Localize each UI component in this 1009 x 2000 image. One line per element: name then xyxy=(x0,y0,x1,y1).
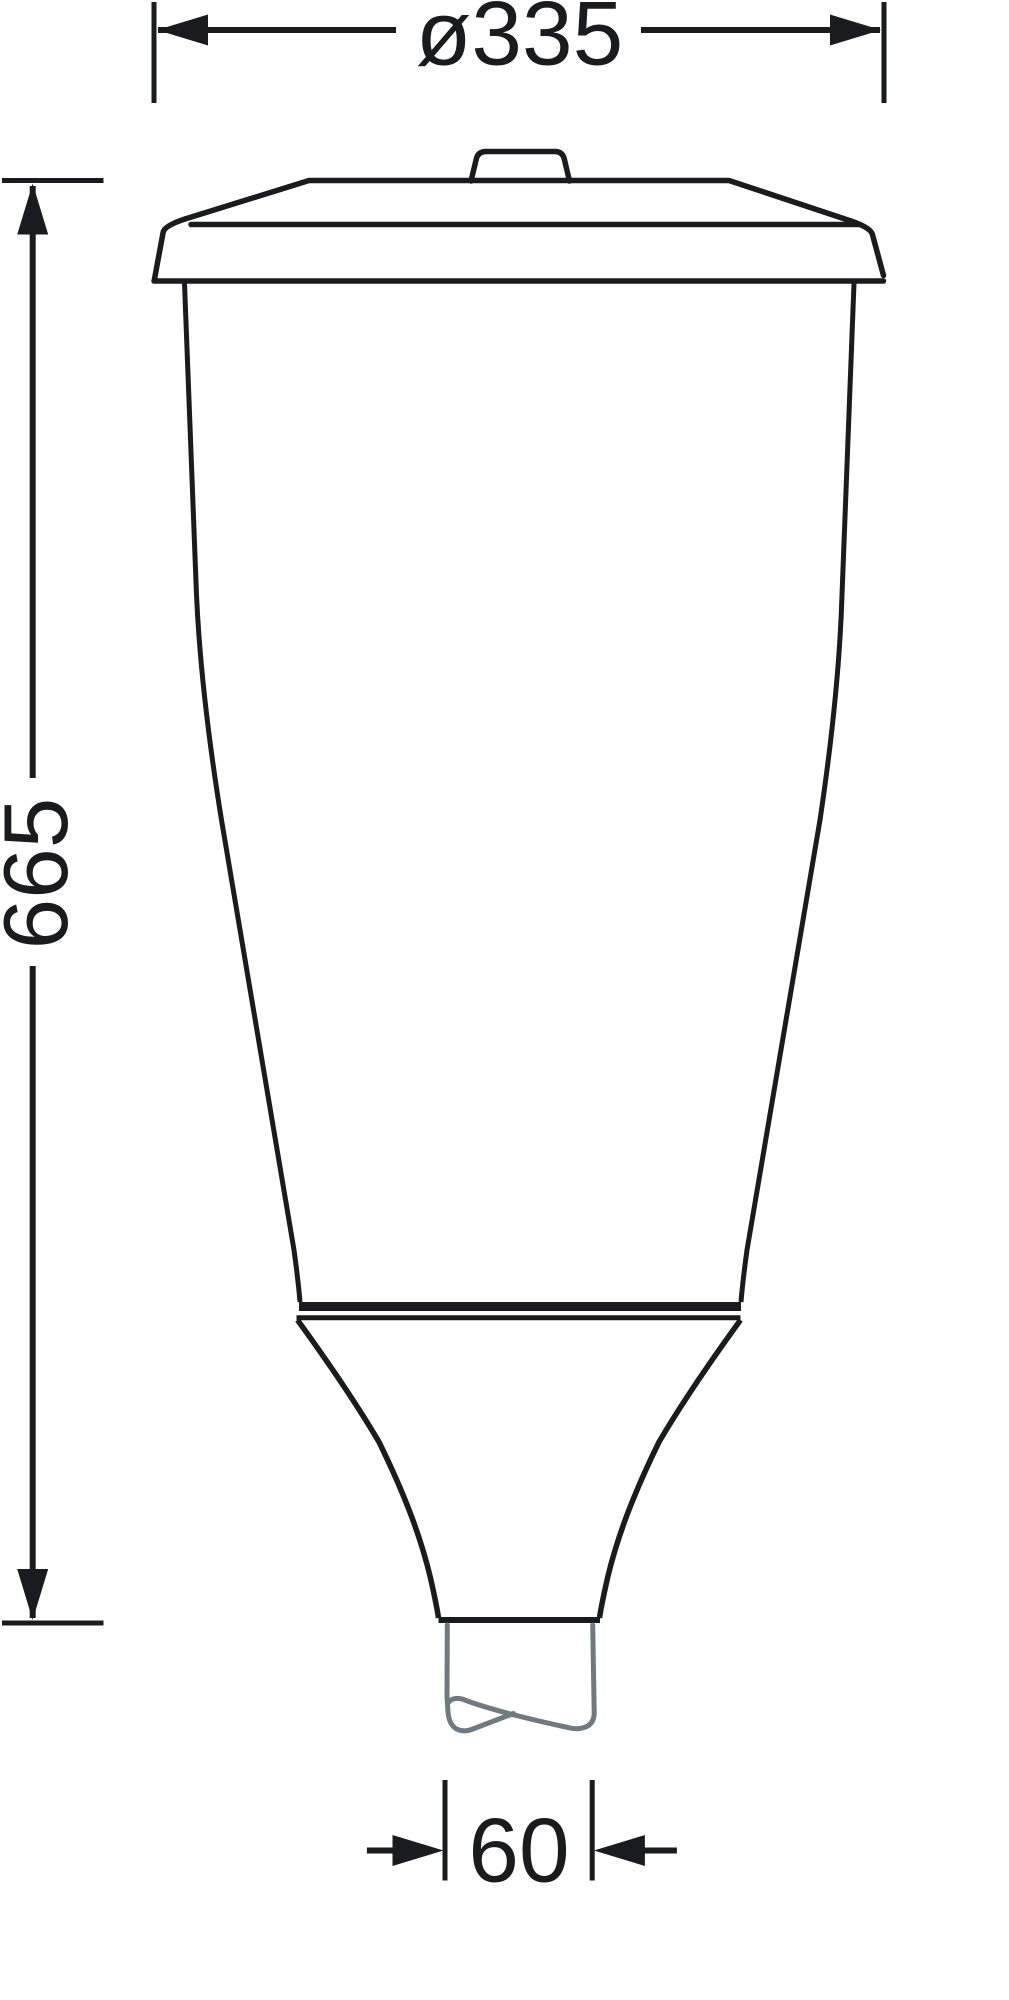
svg-text:60: 60 xyxy=(468,1801,569,1902)
svg-text:665: 665 xyxy=(0,798,87,950)
svg-text:ø335: ø335 xyxy=(416,0,623,85)
